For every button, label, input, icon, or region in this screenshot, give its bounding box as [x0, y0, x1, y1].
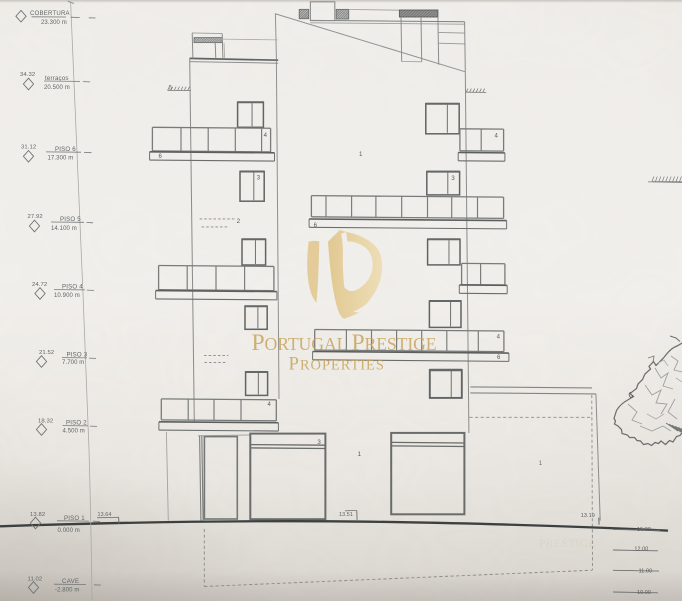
svg-text:3: 3 [317, 439, 321, 446]
svg-text:13.82: 13.82 [30, 512, 45, 518]
svg-text:-2.800 m: -2.800 m [55, 588, 79, 594]
svg-text:12.00: 12.00 [634, 546, 648, 552]
svg-text:PORTUGALPRESTIGE: PORTUGALPRESTIGE [252, 330, 437, 356]
svg-text:4.500 m: 4.500 m [63, 428, 85, 434]
svg-text:23.300 m: 23.300 m [41, 20, 67, 26]
svg-text:15.00: 15.00 [637, 527, 651, 533]
svg-text:24.72: 24.72 [32, 282, 47, 288]
svg-text:34.32: 34.32 [20, 72, 35, 78]
svg-text:31.12: 31.12 [21, 145, 36, 151]
svg-text:1: 1 [358, 451, 362, 458]
svg-text:1: 1 [359, 151, 363, 158]
svg-text:2: 2 [237, 218, 241, 225]
svg-text:10.00: 10.00 [637, 590, 651, 596]
svg-text:18.32: 18.32 [38, 418, 53, 424]
svg-text:11.02: 11.02 [28, 577, 43, 583]
svg-text:0.000 m: 0.000 m [58, 528, 80, 534]
svg-text:20.500 m: 20.500 m [44, 85, 70, 91]
svg-text:PRESTIGE: PRESTIGE [539, 538, 596, 550]
svg-text:27.92: 27.92 [28, 214, 43, 220]
svg-text:11.00: 11.00 [639, 568, 653, 574]
svg-text:COBERTURA: COBERTURA [30, 11, 70, 17]
svg-text:14.100 m: 14.100 m [51, 226, 77, 232]
svg-text:17.300 m: 17.300 m [48, 156, 74, 162]
svg-text:PROPERTIES: PROPERTIES [289, 354, 385, 375]
svg-text:13.51: 13.51 [339, 512, 353, 518]
svg-text:21.52: 21.52 [39, 350, 54, 356]
svg-text:7.700 m: 7.700 m [62, 360, 84, 366]
svg-text:10.900 m: 10.900 m [54, 293, 80, 299]
